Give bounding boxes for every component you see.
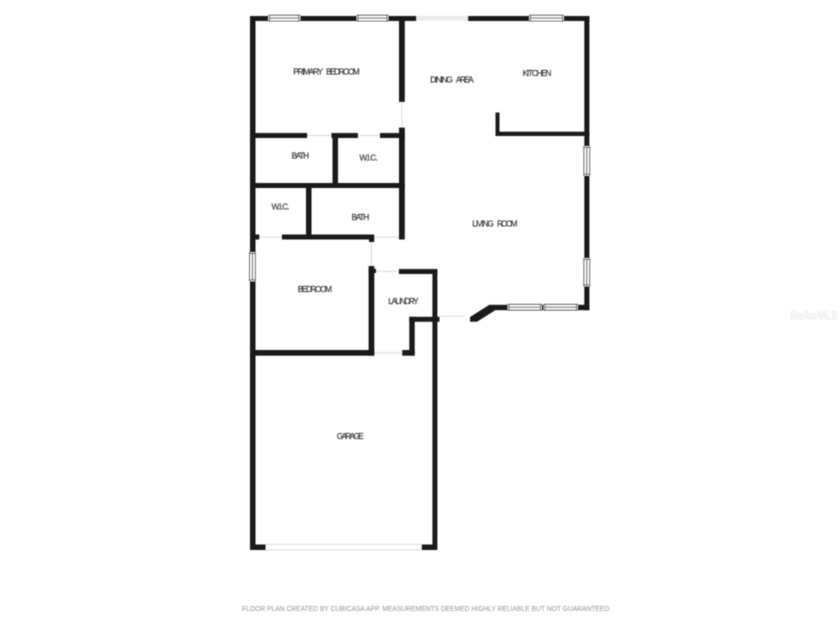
svg-text:BEDROOM: BEDROOM <box>298 284 332 294</box>
svg-text:DINING: DINING <box>430 74 453 84</box>
svg-text:LAUNDRY: LAUNDRY <box>388 296 419 306</box>
svg-text:KITCHEN: KITCHEN <box>523 68 552 78</box>
svg-text:FLOOR PLAN CREATED BY CUBICASA: FLOOR PLAN CREATED BY CUBICASA APP. MEAS… <box>242 604 611 613</box>
svg-text:ROOM: ROOM <box>497 218 518 228</box>
svg-text:BATH: BATH <box>292 151 310 161</box>
svg-text:StellarMLS: StellarMLS <box>790 311 838 323</box>
svg-text:GARAGE: GARAGE <box>337 431 364 441</box>
svg-text:BEDROOM: BEDROOM <box>326 66 360 76</box>
svg-text:LIVING: LIVING <box>472 218 494 228</box>
svg-text:AREA: AREA <box>456 74 474 84</box>
svg-text:W.I.C.: W.I.C. <box>271 202 289 212</box>
svg-text:BATH: BATH <box>352 212 370 222</box>
svg-text:PRIMARY: PRIMARY <box>293 66 323 76</box>
svg-text:W.I.C.: W.I.C. <box>359 153 377 163</box>
